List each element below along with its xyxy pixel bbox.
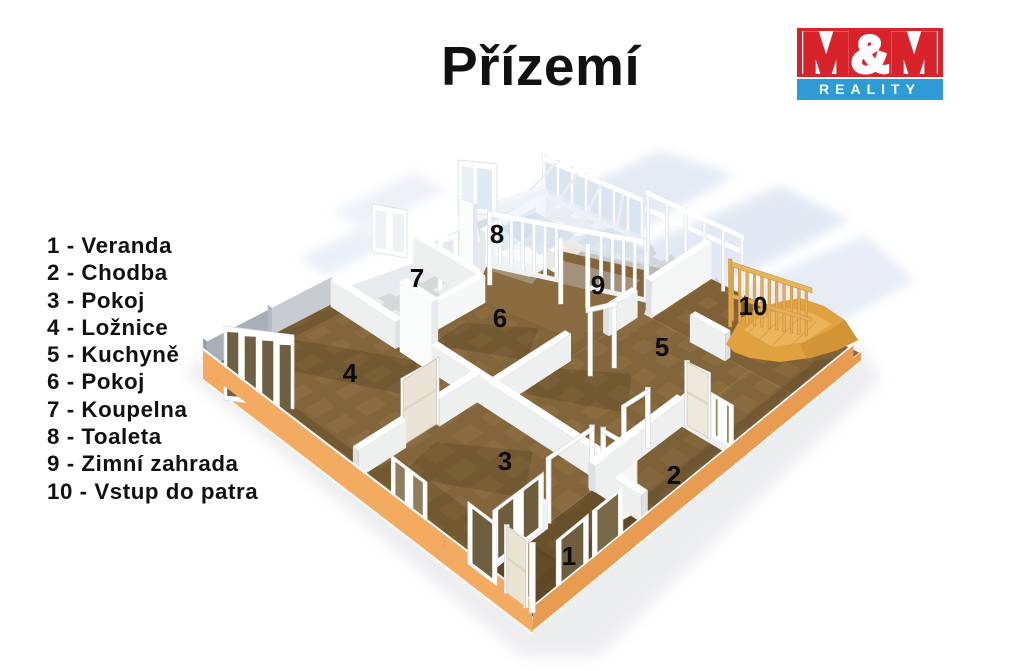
svg-text:5: 5 [655,332,669,362]
svg-text:4: 4 [343,358,358,388]
svg-text:M: M [890,28,938,77]
svg-text:M: M [802,28,850,77]
svg-text:2: 2 [667,460,681,490]
svg-text:3: 3 [498,446,512,476]
svg-text:9: 9 [591,270,605,300]
svg-text:10: 10 [739,291,768,321]
svg-text:7: 7 [410,263,424,293]
svg-text:6: 6 [493,303,507,333]
svg-text:&: & [851,28,889,77]
svg-text:1: 1 [562,541,576,571]
svg-text:8: 8 [490,219,504,249]
